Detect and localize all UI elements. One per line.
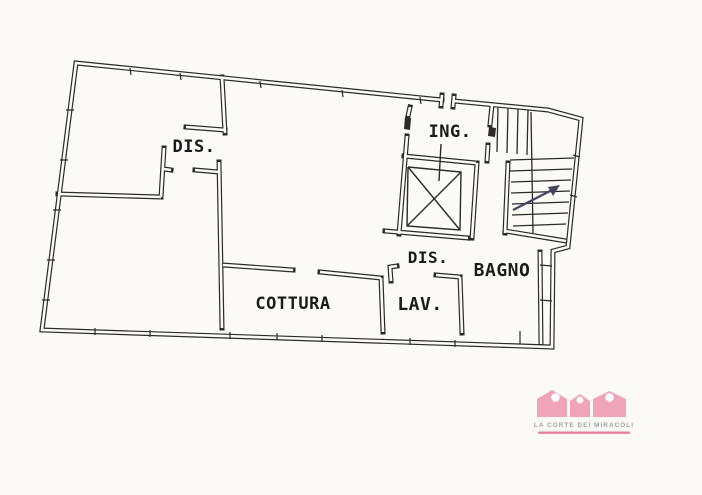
- room-label-bagno: BAGNO: [474, 260, 531, 281]
- watermark-brand-text: LA CORTE DEI MIRACOLI: [534, 422, 634, 429]
- room-label-dis-2: DIS.: [408, 248, 449, 267]
- watermark-underline: [538, 432, 630, 434]
- room-label-dis-1: DIS.: [173, 137, 216, 157]
- door-marker: [404, 117, 411, 130]
- scanned-floorplan-page: DIS. ING. DIS. BAGNO COTTURA LAV. LA COR…: [0, 0, 702, 495]
- door-marker: [488, 127, 496, 137]
- floor-plan-canvas: DIS. ING. DIS. BAGNO COTTURA LAV. LA COR…: [0, 0, 702, 495]
- room-label-cottura: COTTURA: [255, 294, 330, 314]
- room-label-lav: LAV.: [397, 294, 442, 315]
- room-label-ing: ING.: [429, 122, 472, 142]
- house-window-icon: [551, 393, 560, 402]
- house-window-icon: [577, 397, 584, 404]
- house-window-icon: [605, 393, 614, 402]
- paper-background: [0, 0, 702, 495]
